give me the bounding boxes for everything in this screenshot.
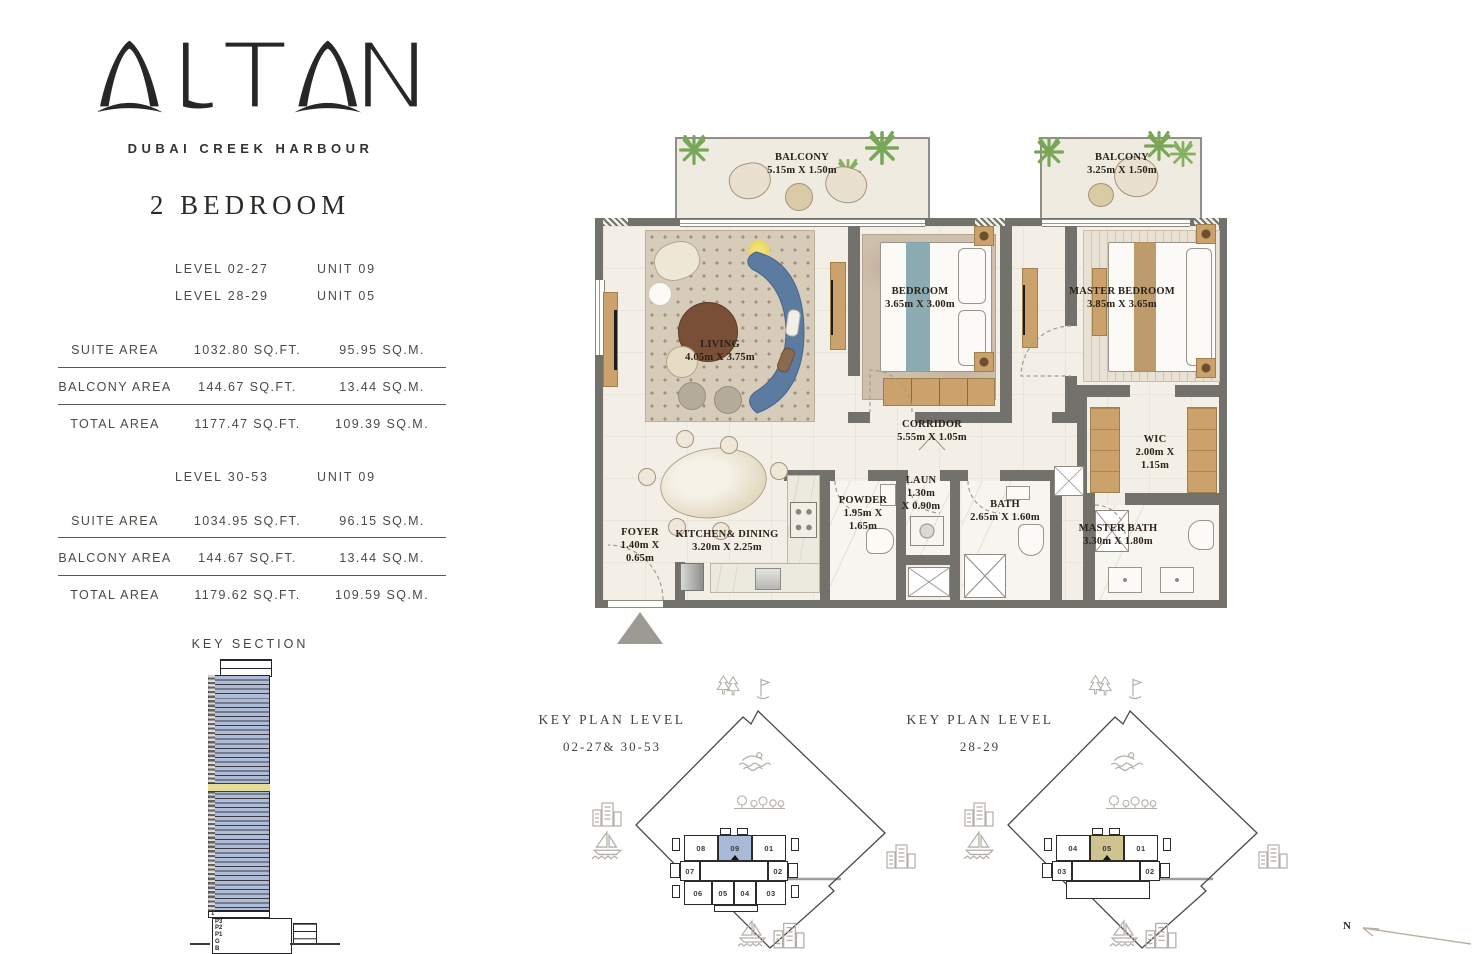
room-name: LAUN	[891, 474, 951, 487]
door-swing	[1021, 326, 1071, 376]
unit-cell: 03	[756, 881, 786, 905]
footprint-tab	[788, 863, 798, 878]
buildings-icon	[885, 841, 917, 869]
podium-label: B	[213, 946, 291, 952]
altan-logo	[98, 34, 432, 118]
area-row-sqft: 1034.95 SQ.FT.	[190, 514, 305, 528]
room-label-master-bath: MASTER BATH 3.30m X 1.80m	[1043, 522, 1193, 548]
entrance-arrow	[617, 612, 663, 644]
core-cell	[1072, 861, 1140, 881]
tower-floor-number-strip	[208, 675, 215, 911]
room-dims: 3.20m X 2.25m	[652, 541, 802, 554]
room-label-wic: WIC 2.00m X 1.15m	[1110, 433, 1200, 472]
footprint-tab	[1044, 838, 1052, 851]
unit-cell: 07	[680, 861, 700, 881]
area-row-label: TOTAL AREA	[50, 417, 180, 431]
area-row-label: SUITE AREA	[50, 514, 180, 528]
golf-flag-icon	[755, 675, 771, 702]
footprint-tab	[1160, 863, 1170, 878]
key-plan-2: 04 05 01 03 02	[987, 662, 1287, 954]
footprint-tab	[1109, 828, 1120, 835]
plan-title: 2 BEDROOM	[60, 190, 440, 221]
room-dims: 4.05m X 3.75m	[645, 351, 795, 364]
area-row-sqm: 96.15 SQ.M.	[322, 514, 442, 528]
area-row-sqft: 1177.47 SQ.FT.	[190, 417, 305, 431]
unit-label: UNIT 09	[317, 470, 417, 484]
compass: N	[1335, 910, 1481, 954]
key-section-title: KEY SECTION	[150, 637, 350, 651]
footprint-tab	[791, 885, 799, 898]
room-dims: 2.65m X 1.60m	[960, 511, 1050, 524]
table-divider	[58, 537, 446, 538]
key-section-tower: 1 P3 P2 P1 G B	[190, 652, 342, 954]
room-name: MASTER BATH	[1043, 522, 1193, 535]
ground-line	[190, 943, 210, 945]
tower-body	[208, 675, 270, 911]
room-label-kitchen: KITCHEN& DINING 3.20m X 2.25m	[652, 528, 802, 554]
table-divider	[58, 367, 446, 368]
entrance-opening	[608, 600, 663, 608]
footprint-tab	[672, 838, 680, 851]
buildings-icon	[1144, 919, 1178, 949]
ground-line	[290, 943, 340, 945]
room-dims: 2.00m X	[1110, 446, 1200, 459]
unit-cell: 02	[768, 861, 788, 881]
buildings-icon	[772, 919, 806, 949]
room-name: BEDROOM	[845, 285, 995, 298]
room-name: MASTER BEDROOM	[1047, 285, 1197, 298]
sailboat-icon	[589, 830, 627, 862]
floor-plan: BALCONY 5.15m X 1.50m BALCONY 3.25m X 1.…	[590, 130, 1235, 645]
level-label: LEVEL 02-27	[175, 262, 315, 276]
table-divider	[58, 575, 446, 576]
buildings-icon	[963, 798, 995, 828]
room-name: BATH	[960, 498, 1050, 511]
golf-flag-icon	[1127, 675, 1143, 702]
room-dims: X 0.90m	[891, 500, 951, 513]
podium-label: G	[213, 939, 291, 945]
tower-highlight-band	[208, 783, 270, 792]
unit-cell: 01	[1124, 835, 1158, 861]
plot-outline	[1008, 711, 1257, 948]
level-label: LEVEL 28-29	[175, 289, 315, 303]
unit-cell: 06	[684, 881, 712, 905]
footprint-tab	[737, 828, 748, 835]
door-swing	[870, 370, 912, 412]
buildings-icon	[1257, 841, 1289, 869]
room-name: LIVING	[645, 338, 795, 351]
unit-cell: 02	[1140, 861, 1160, 881]
tower-annex	[293, 923, 317, 945]
area-row-sqm: 95.95 SQ.M.	[322, 343, 442, 357]
swimmer-icon	[737, 750, 773, 771]
sailboat-icon	[1107, 918, 1143, 950]
room-label-corridor: CORRIDOR 5.55m X 1.05m	[857, 418, 1007, 444]
unit-label: UNIT 09	[317, 262, 417, 276]
podium-outline-cell	[1066, 881, 1150, 899]
table-divider	[58, 404, 446, 405]
footprint-tab	[670, 863, 680, 878]
room-label-bath: BATH 2.65m X 1.60m	[960, 498, 1050, 524]
area-row-sqm: 13.44 SQ.M.	[322, 551, 442, 565]
room-label-bedroom: BEDROOM 3.65m X 3.00m	[845, 285, 995, 311]
room-dims: 3.65m X 3.00m	[845, 298, 995, 311]
footprint-tab	[714, 905, 758, 912]
buildings-icon	[591, 798, 623, 828]
area-row-sqft: 144.67 SQ.FT.	[190, 380, 305, 394]
area-row-sqm: 109.39 SQ.M.	[322, 417, 442, 431]
room-label-master-bedroom: MASTER BEDROOM 3.85m X 3.65m	[1047, 285, 1197, 311]
room-dims: 1.15m	[1110, 459, 1200, 472]
room-label-laun: LAUN 1.30m X 0.90m	[891, 474, 951, 513]
room-dims: 3.30m X 1.80m	[1043, 535, 1193, 548]
podium-row: B	[212, 946, 292, 954]
key-plan-1: 08 09 01 07 02 06 05 04 03	[615, 662, 915, 954]
area-row-sqm: 13.44 SQ.M.	[322, 380, 442, 394]
unit-entry-marker	[731, 855, 739, 860]
footprint-tab	[1042, 863, 1052, 878]
core-cell	[700, 861, 768, 881]
podium-label: P2	[213, 925, 291, 931]
room-dims: 5.55m X 1.05m	[857, 431, 1007, 444]
unit-cell: 01	[752, 835, 786, 861]
room-dims: 3.85m X 3.65m	[1047, 298, 1197, 311]
area-row-sqm: 109.59 SQ.M.	[322, 588, 442, 602]
swimmer-icon	[1109, 750, 1145, 771]
podium-label: P1	[213, 932, 291, 938]
left-panel: DUBAI CREEK HARBOUR 2 BEDROOM LEVEL 02-2…	[0, 0, 500, 954]
building-footprint: 08 09 01 07 02 06 05 04 03	[680, 835, 792, 913]
floorplan-brochure-page: DUBAI CREEK HARBOUR 2 BEDROOM LEVEL 02-2…	[0, 0, 1481, 954]
level-label: LEVEL 30-53	[175, 470, 315, 484]
footprint-tab	[1163, 838, 1171, 851]
room-name: KITCHEN& DINING	[652, 528, 802, 541]
room-name: CORRIDOR	[857, 418, 1007, 431]
floor-plan-overlay	[590, 130, 1235, 645]
building-footprint: 04 05 01 03 02	[1052, 835, 1164, 901]
footprint-tab	[1092, 828, 1103, 835]
unit-cell: 03	[1052, 861, 1072, 881]
room-dims: 1.65m	[818, 520, 908, 533]
tower-floor-1: 1	[208, 911, 270, 918]
unit-entry-marker	[1103, 855, 1111, 860]
room-label-living: LIVING 4.05m X 3.75m	[645, 338, 795, 364]
room-name: WIC	[1110, 433, 1200, 446]
footprint-tab	[672, 885, 680, 898]
area-row-sqft: 1032.80 SQ.FT.	[190, 343, 305, 357]
area-row-label: BALCONY AREA	[50, 380, 180, 394]
footprint-tab	[720, 828, 731, 835]
brand-subtitle: DUBAI CREEK HARBOUR	[88, 141, 413, 156]
footprint-tab	[791, 838, 799, 851]
unit-cell: 08	[684, 835, 718, 861]
floor-1-label: 1	[209, 912, 269, 917]
area-row-label: TOTAL AREA	[50, 588, 180, 602]
park-trees-icon	[733, 792, 787, 811]
room-dims: 1.30m	[891, 487, 951, 500]
sailboat-icon	[735, 918, 771, 950]
unit-cell: 04	[1056, 835, 1090, 861]
unit-cell: 05	[712, 881, 734, 905]
unit-cell: 04	[734, 881, 756, 905]
area-row-label: BALCONY AREA	[50, 551, 180, 565]
area-row-sqft: 1179.62 SQ.FT.	[190, 588, 305, 602]
north-label: N	[1343, 920, 1351, 932]
area-row-sqft: 144.67 SQ.FT.	[190, 551, 305, 565]
area-row-label: SUITE AREA	[50, 343, 180, 357]
trees-icon	[1083, 674, 1113, 702]
trees-icon	[711, 674, 741, 702]
park-trees-icon	[1105, 792, 1159, 811]
sailboat-icon	[961, 830, 999, 862]
unit-label: UNIT 05	[317, 289, 417, 303]
north-arrow-icon	[1355, 922, 1475, 948]
